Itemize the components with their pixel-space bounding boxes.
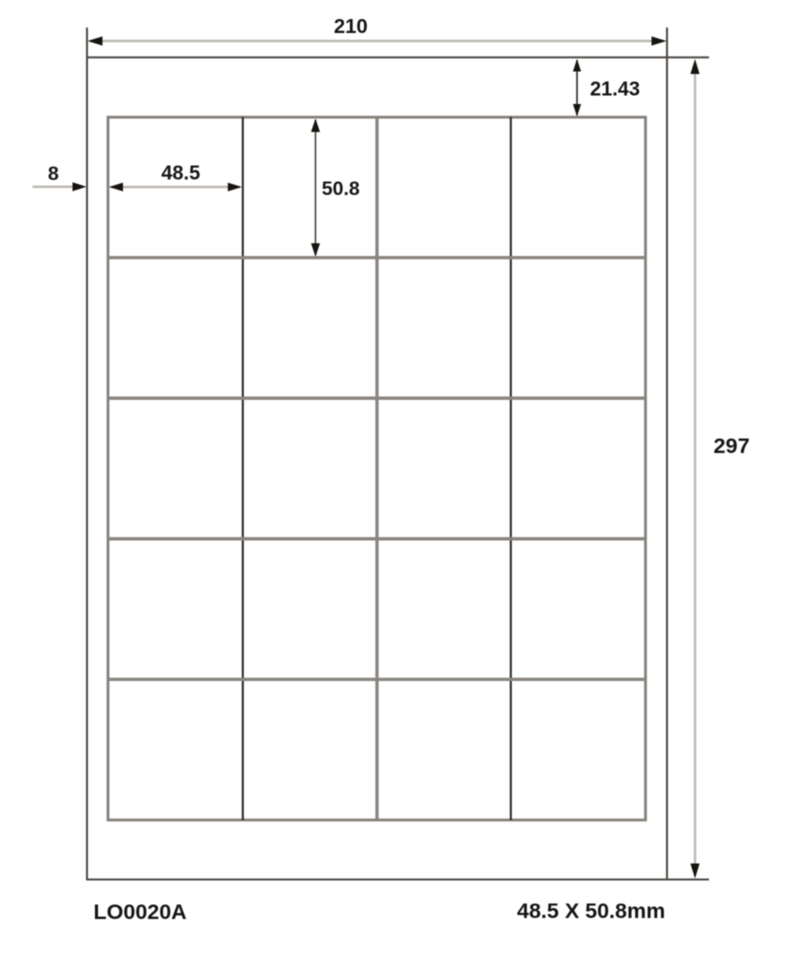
svg-text:50.8: 50.8 [322,178,360,200]
svg-text:LO0020A: LO0020A [94,900,187,924]
svg-text:297: 297 [714,433,750,458]
svg-text:48.5 X 50.8mm: 48.5 X 50.8mm [517,899,665,923]
svg-text:21.43: 21.43 [590,79,640,101]
svg-text:210: 210 [334,16,368,38]
svg-text:8: 8 [48,163,59,185]
svg-text:48.5: 48.5 [161,163,200,185]
